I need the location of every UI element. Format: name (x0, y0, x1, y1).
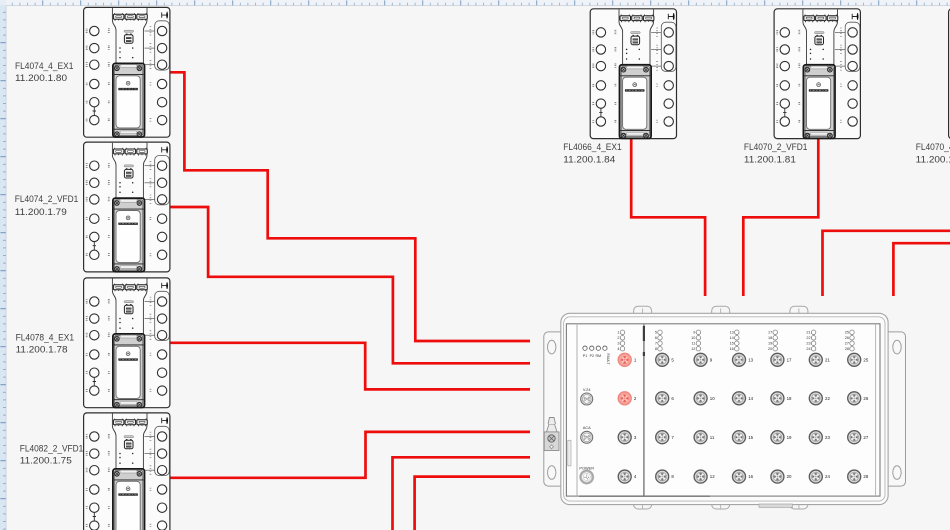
svg-text:26: 26 (863, 396, 868, 401)
svg-text:3: 3 (617, 342, 619, 346)
svg-text:POWER: POWER (579, 465, 594, 470)
svg-text:27: 27 (845, 342, 849, 346)
svg-text:14: 14 (748, 396, 753, 401)
svg-text:11.200.1.84: 11.200.1.84 (563, 154, 615, 164)
svg-text:16: 16 (730, 347, 734, 351)
svg-text:12: 12 (691, 347, 695, 351)
svg-text:25: 25 (845, 331, 849, 335)
svg-text:11: 11 (710, 435, 715, 440)
svg-text:FL4074_4_EX1: FL4074_4_EX1 (15, 61, 73, 71)
svg-text:14: 14 (730, 336, 734, 340)
svg-text:25: 25 (863, 357, 868, 362)
svg-text:4: 4 (617, 347, 619, 351)
svg-text:11.200.1.81: 11.200.1.81 (744, 154, 796, 164)
svg-text:11.200.1.78: 11.200.1.78 (16, 344, 68, 354)
svg-text:FL4082_2_VFD1: FL4082_2_VFD1 (20, 443, 84, 453)
svg-text:10: 10 (691, 336, 695, 340)
svg-text:RM: RM (596, 354, 602, 358)
svg-text:11.200.1.80: 11.200.1.80 (15, 73, 67, 83)
svg-text:FL4070_4_EX1: FL4070_4_EX1 (916, 142, 950, 152)
svg-text:FL4066_4_EX1: FL4066_4_EX1 (563, 142, 621, 152)
svg-text:17: 17 (787, 357, 792, 362)
svg-text:16: 16 (748, 474, 753, 479)
svg-text:21: 21 (825, 357, 830, 362)
svg-text:ACA: ACA (583, 425, 591, 430)
svg-text:V.24: V.24 (583, 387, 591, 392)
svg-text:11.200.1.82: 11.200.1.82 (916, 154, 950, 164)
svg-text:13: 13 (748, 357, 753, 362)
svg-text:17: 17 (768, 331, 772, 335)
svg-text:22: 22 (806, 336, 810, 340)
svg-text:24: 24 (806, 347, 810, 351)
svg-text:18: 18 (768, 336, 772, 340)
svg-text:11.200.1.79: 11.200.1.79 (15, 207, 67, 217)
svg-text:2: 2 (617, 336, 619, 340)
svg-text:19: 19 (768, 342, 772, 346)
svg-text:15: 15 (748, 435, 753, 440)
svg-text:9: 9 (693, 331, 695, 335)
svg-text:6: 6 (655, 336, 657, 340)
svg-text:27: 27 (863, 435, 868, 440)
svg-text:5: 5 (655, 331, 657, 335)
svg-text:22: 22 (825, 396, 830, 401)
svg-text:21: 21 (806, 331, 810, 335)
svg-text:20: 20 (787, 474, 792, 479)
svg-text:23: 23 (825, 435, 830, 440)
svg-text:10: 10 (710, 396, 715, 401)
svg-text:15: 15 (730, 342, 734, 346)
svg-text:11: 11 (691, 342, 695, 346)
svg-text:13: 13 (730, 331, 734, 335)
svg-text:24: 24 (825, 474, 830, 479)
svg-text:19: 19 (787, 435, 792, 440)
svg-text:1: 1 (617, 331, 619, 335)
svg-text:8: 8 (655, 347, 657, 351)
svg-text:7: 7 (655, 342, 657, 346)
svg-text:28: 28 (863, 474, 868, 479)
svg-text:11.200.1.75: 11.200.1.75 (20, 455, 72, 465)
svg-text:20: 20 (768, 347, 772, 351)
svg-text:FAULT: FAULT (606, 354, 610, 366)
svg-text:23: 23 (806, 342, 810, 346)
svg-text:26: 26 (845, 336, 849, 340)
svg-text:12: 12 (710, 474, 715, 479)
svg-text:18: 18 (787, 396, 792, 401)
svg-text:P1: P1 (583, 354, 587, 358)
svg-text:FL4078_4_EX1: FL4078_4_EX1 (16, 333, 74, 343)
svg-text:P2: P2 (590, 354, 594, 358)
svg-text:FL4074_2_VFD1: FL4074_2_VFD1 (15, 194, 79, 204)
svg-text:FL4070_2_VFD1: FL4070_2_VFD1 (744, 142, 808, 152)
svg-text:28: 28 (845, 347, 849, 351)
